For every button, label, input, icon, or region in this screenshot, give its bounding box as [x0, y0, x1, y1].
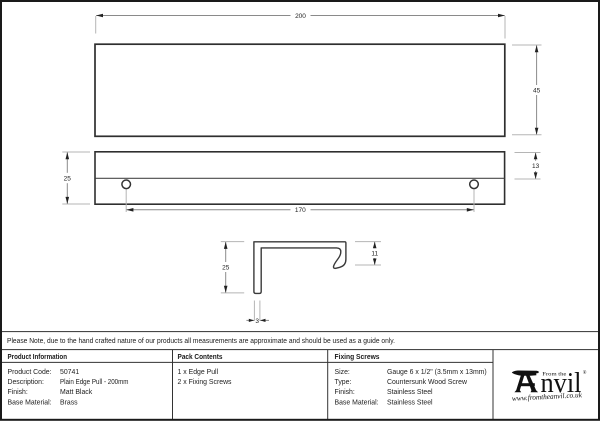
svg-text:Please Note, due to the hand c: Please Note, due to the hand crafted nat… — [7, 338, 395, 345]
svg-text:25: 25 — [222, 264, 230, 271]
svg-text:13: 13 — [532, 163, 540, 170]
svg-text:Stainless Steel: Stainless Steel — [387, 400, 433, 407]
svg-text:Product Code:: Product Code: — [8, 369, 52, 376]
svg-text:Description:: Description: — [8, 379, 44, 386]
svg-text:3: 3 — [255, 318, 259, 325]
svg-text:Countersunk Wood Screw: Countersunk Wood Screw — [387, 379, 467, 386]
svg-text:11: 11 — [371, 250, 378, 257]
svg-text:Base Material:: Base Material: — [8, 400, 52, 407]
svg-text:Pack Contents: Pack Contents — [178, 354, 223, 361]
svg-text:Finish:: Finish: — [335, 389, 355, 396]
svg-text:Size:: Size: — [335, 369, 350, 376]
svg-text:1 x Edge Pull: 1 x Edge Pull — [178, 369, 219, 376]
svg-text:Gauge 6 x 1/2" (3.5mm x 13mm): Gauge 6 x 1/2" (3.5mm x 13mm) — [387, 369, 487, 376]
svg-text:Finish:: Finish: — [8, 389, 28, 396]
svg-text:25: 25 — [64, 175, 72, 182]
svg-text:Stainless Steel: Stainless Steel — [387, 389, 433, 396]
svg-text:Matt Black: Matt Black — [60, 389, 93, 396]
svg-text:Product Information: Product Information — [8, 354, 68, 361]
svg-text:Type:: Type: — [335, 379, 352, 386]
svg-text:170: 170 — [295, 207, 306, 214]
svg-text:45: 45 — [533, 87, 541, 94]
svg-text:Fixing Screws: Fixing Screws — [335, 354, 380, 361]
svg-text:®: ® — [583, 370, 587, 376]
svg-text:Plain Edge Pull - 200mm: Plain Edge Pull - 200mm — [60, 379, 129, 386]
svg-text:2 x Fixing Screws: 2 x Fixing Screws — [178, 379, 233, 386]
svg-text:Brass: Brass — [60, 400, 78, 407]
svg-text:50741: 50741 — [60, 369, 79, 376]
svg-text:Base Material:: Base Material: — [335, 400, 379, 407]
svg-text:200: 200 — [295, 13, 306, 20]
